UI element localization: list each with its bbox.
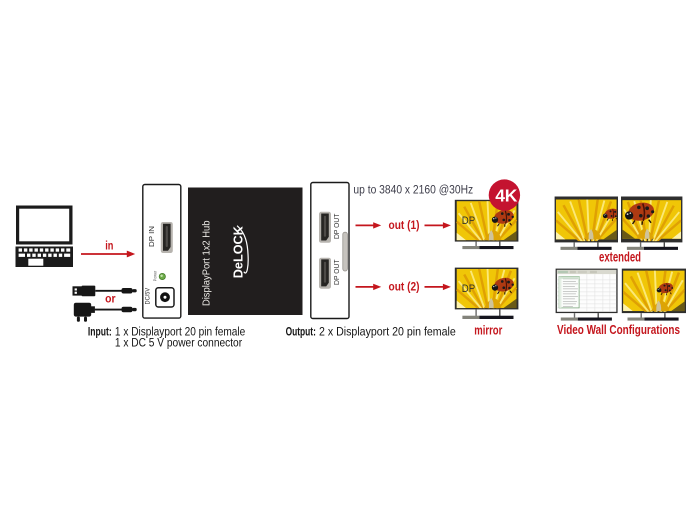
svg-text:Video Wall Configurations: Video Wall Configurations: [557, 323, 680, 337]
svg-text:out (1): out (1): [389, 218, 420, 232]
svg-text:DP OUT: DP OUT: [332, 259, 341, 285]
svg-text:DP: DP: [462, 215, 475, 227]
svg-text:or: or: [105, 292, 116, 306]
svg-text:mirror: mirror: [474, 324, 502, 338]
svg-text:DisplayPort 1x2 Hub: DisplayPort 1x2 Hub: [202, 220, 213, 306]
svg-text:DP: DP: [462, 283, 475, 295]
svg-text:4K: 4K: [495, 185, 517, 205]
svg-text:DC/5V: DC/5V: [146, 288, 152, 305]
svg-text:DP OUT: DP OUT: [332, 213, 341, 239]
svg-text:2 x Displayport 20 pin female: 2 x Displayport 20 pin female: [319, 324, 456, 338]
svg-text:extended: extended: [599, 249, 641, 264]
svg-text:Power: Power: [153, 270, 158, 281]
svg-text:in: in: [105, 239, 113, 253]
svg-text:DP IN: DP IN: [147, 226, 156, 247]
svg-text:Input:: Input:: [88, 324, 112, 338]
svg-text:1 x DC 5 V power connector: 1 x DC 5 V power connector: [115, 335, 242, 349]
svg-text:out (2): out (2): [389, 280, 420, 294]
svg-text:Output:: Output:: [286, 324, 316, 338]
svg-text:up to 3840 x 2160 @30Hz: up to 3840 x 2160 @30Hz: [353, 183, 473, 197]
